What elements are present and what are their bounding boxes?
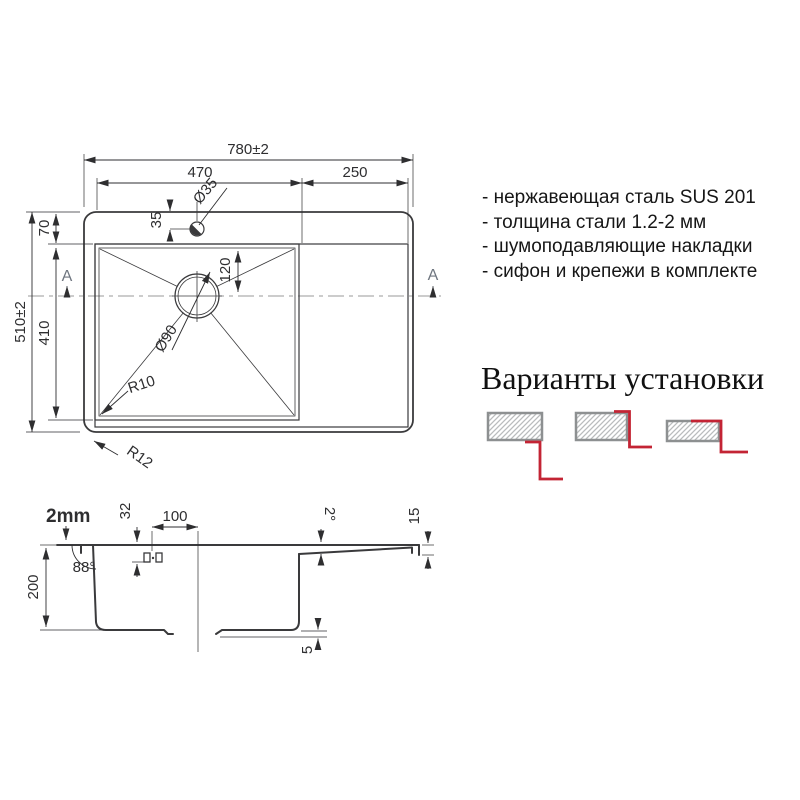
drawing-svg: Ø35 780±2 470 250 510±2 70 [0,0,800,800]
feature-item: - толщина стали 1.2-2 мм [482,211,757,236]
bowl-corner-radius-label: R10 [126,372,157,397]
board-slope-label: 2° [321,507,338,521]
left-wall-and-bottom [93,545,173,634]
countertop-slab [667,421,719,441]
countertop-slab [576,413,627,440]
section-marker-left: A [62,268,73,285]
wing-width-label: 250 [342,164,367,181]
outer-corner-radius-label: R12 [123,442,155,472]
steel-thickness-label: 2mm [46,506,90,527]
dim-overall-depth: 510±2 70 410 [12,212,93,432]
overall-width-label: 780±2 [227,141,269,158]
faucet-hole-section [144,553,162,562]
dim-radii: R10 R12 [94,372,157,472]
feature-item: - сифон и крепежи в комплекте [482,260,757,285]
faucet-to-drain-label: 100 [162,508,187,525]
install-options-title: Варианты установки [481,360,764,397]
sink-technical-drawing: Ø35 780±2 470 250 510±2 70 [0,0,800,800]
sink-inner-edge [95,244,408,427]
countertop-slab [488,413,542,440]
feature-item: - шумоподавляющие накладки [482,235,757,260]
bowl-depth-label: 410 [36,320,53,345]
recess-label: 5 [299,646,316,654]
dim-section-depth: 200 [25,545,104,630]
wall-angle-label: 88° [73,559,96,576]
feature-item: - нержавеющая сталь SUS 201 [482,186,757,211]
drainboard-slope [299,548,412,555]
steel-profile [57,545,419,634]
right-bottom-and-wall [216,554,299,634]
sink-outer-rim [84,212,413,432]
section-view: 2mm 200 88° 32 100 [25,503,434,655]
top-view: Ø35 780±2 470 250 510±2 70 [12,141,441,472]
dim-steel-thickness: 2mm [46,506,90,540]
dim-faucet-offset: 35 [148,204,170,237]
section-markers: A A [62,267,439,297]
drain-offset-label: 120 [217,257,234,282]
drain-hole [172,271,222,322]
dim-board-slope: 2° [321,507,338,563]
overall-depth-label: 510±2 [12,301,29,343]
install-variant-undermount [488,413,563,479]
section-depth-label: 200 [25,574,42,599]
edge-height-label: 15 [406,508,423,525]
top-offset-label: 70 [36,220,53,237]
features-list: - нержавеющая сталь SUS 201 - толщина ст… [482,186,757,284]
bowl-width-label: 470 [187,164,212,181]
faucet-offset-label: 35 [148,212,165,229]
install-variants [488,412,748,480]
section-marker-right: A [428,267,439,284]
faucet-height-label: 32 [117,503,134,520]
sink-edge-profile [525,442,563,479]
drain-dia-label: Ø90 [151,322,180,355]
install-variant-top-mount [667,421,748,452]
dim-recess: 5 [220,622,327,654]
dim-drain-offset: 120 [217,251,238,292]
dim-edge-height: 15 [406,508,434,569]
dim-bowl-width: 470 250 [97,164,408,243]
dim-faucet-height: 32 [117,503,150,577]
install-variant-flush-mount [576,412,652,448]
